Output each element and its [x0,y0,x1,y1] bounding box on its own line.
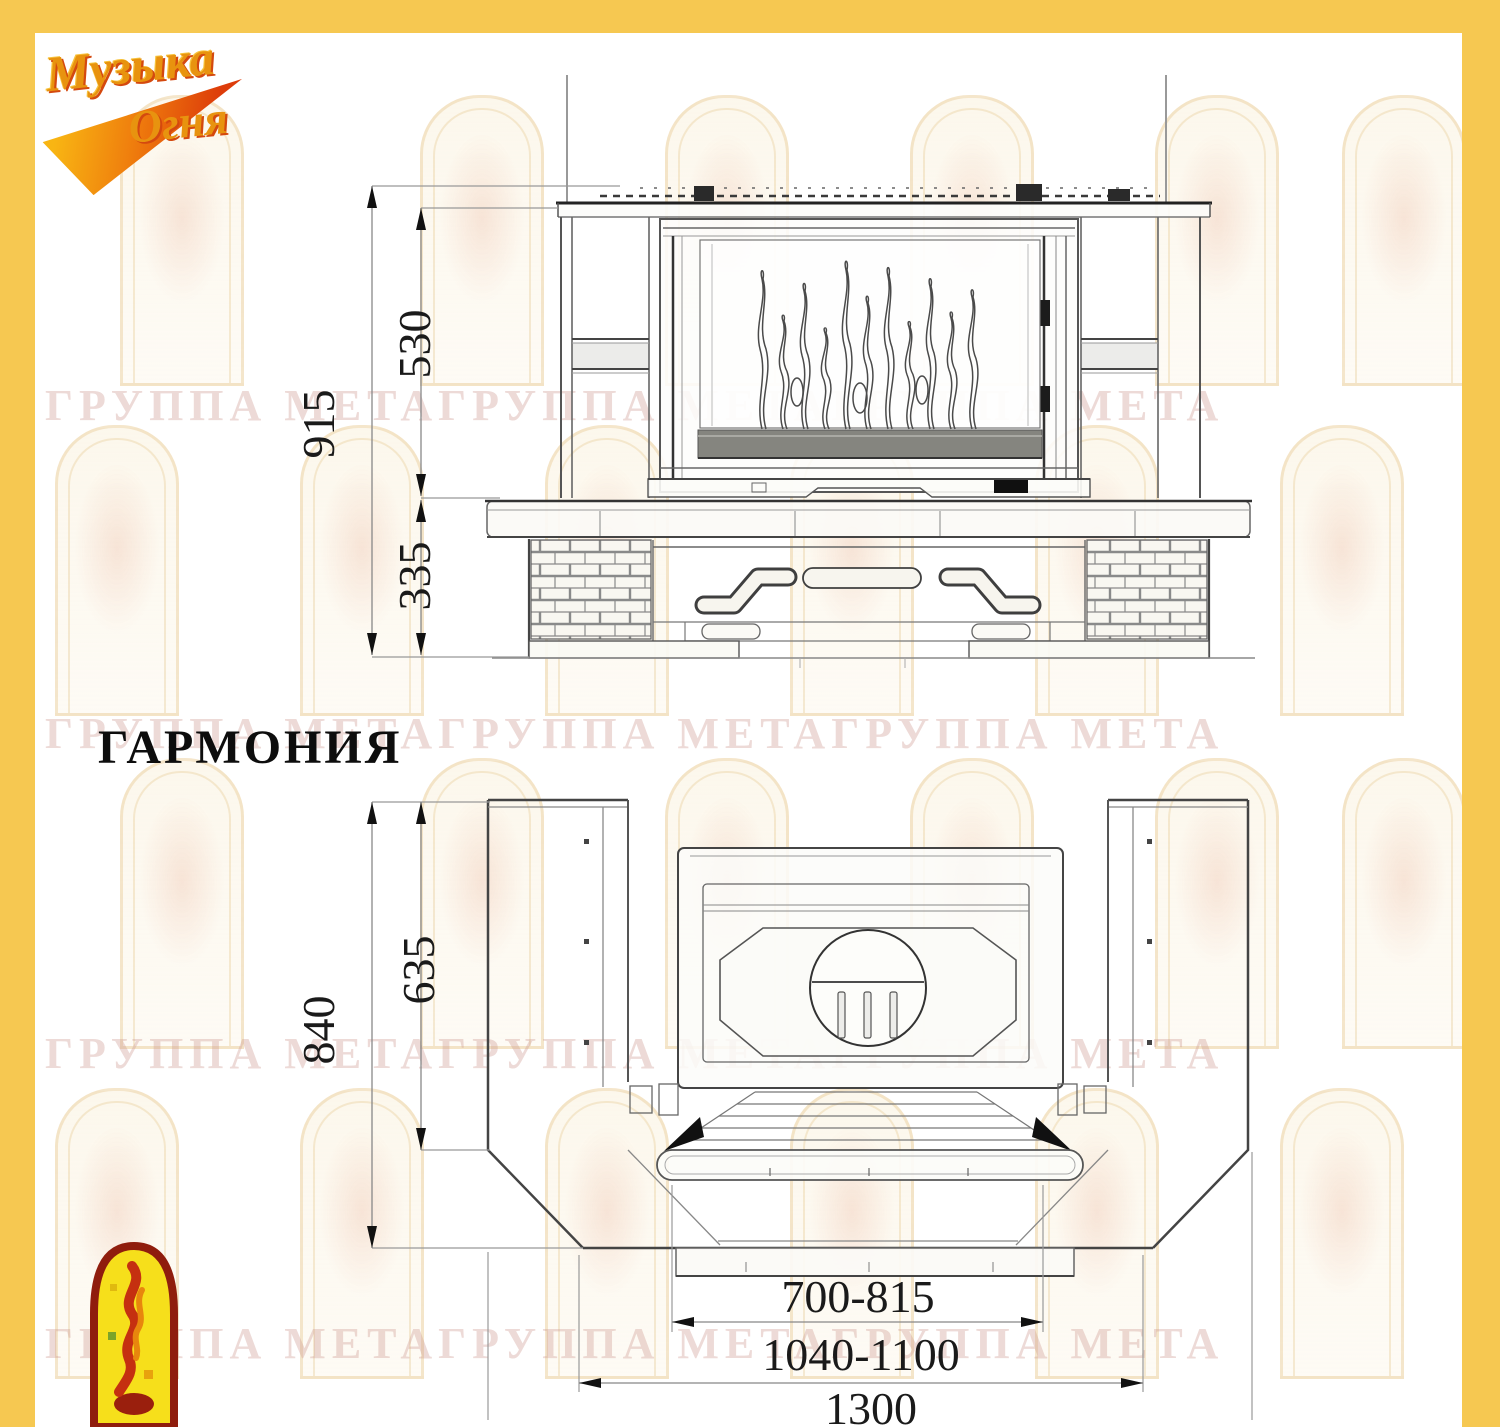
brand-logo-music-of-fire: Музыка Огня [24,13,290,208]
damper-handle [994,480,1028,493]
base-apron [653,547,1085,641]
dim-side-depth: 635 [393,936,444,1005]
left-yellow-strip [0,0,35,1427]
door-hinge [1040,386,1050,412]
base-plinths [492,641,1255,668]
model-title: ГАРМОНИЯ [98,720,402,775]
stepped-sill [683,1092,1049,1140]
dim-firebox-width: 700-815 [781,1271,934,1322]
plan-view: 840 635 700-815 1040-1100 1300 [293,800,1252,1427]
corner-arrow-left [664,1117,704,1151]
right-pillar [1081,217,1158,498]
left-brick-pedestal [529,539,653,658]
door-hinge [1040,300,1050,326]
dim-base-height: 335 [389,542,440,611]
chimney-lines [567,75,1166,203]
mantel-dashed-trim [600,184,1160,201]
fuel-bed [698,430,1042,458]
dim-face-width: 1040-1100 [762,1329,960,1380]
arch-flame-logo-graphic [82,1232,186,1427]
front-elevation-view: 915 530 335 [293,75,1255,668]
brand-logo-line1: Музыка [43,28,217,103]
hearth-shelf [485,501,1252,537]
dim-upper-height: 530 [389,310,440,379]
plan-firebox-unit [630,848,1106,1180]
left-pillar [572,217,649,498]
brand-logo-line2: Огня [126,91,230,154]
front-plate [657,1150,1083,1180]
right-brick-pedestal [1085,539,1209,658]
right-yellow-strip [1462,0,1500,1427]
mantel-shelf [556,203,1212,217]
dim-total-width: 1300 [825,1383,917,1427]
corner-arrow-right [1032,1117,1072,1151]
arch-flame-logo [82,1232,186,1427]
dim-total-height: 915 [293,390,344,459]
apron-slot [803,568,921,588]
fireplace-technical-drawing: 915 530 335 [0,0,1500,1427]
firebox [648,219,1090,497]
dim-total-depth: 840 [293,996,344,1065]
